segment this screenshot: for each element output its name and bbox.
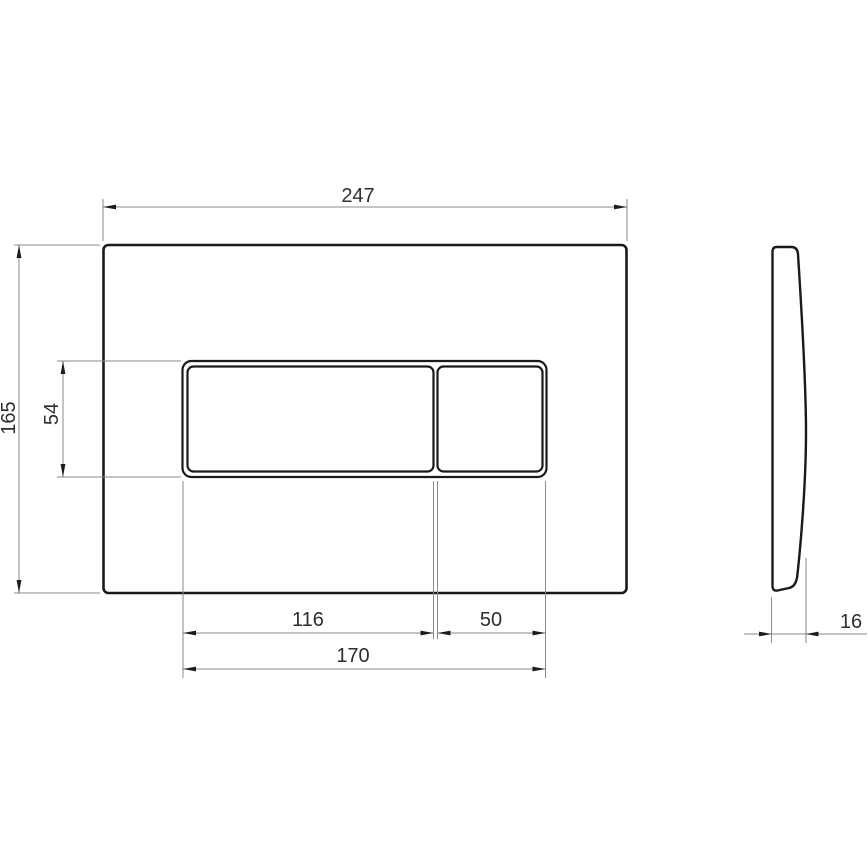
arrowhead-left [438,631,451,636]
large-flush-button [188,367,434,472]
arrowhead-right [533,667,546,672]
dim-plate-thickness: 16 [744,558,867,643]
dim-buttons-overall-width: 170 [183,645,546,671]
arrowhead-right-inward [806,632,819,637]
dim-label-plate-width: 247 [341,185,374,207]
button-recess-frame [183,361,547,477]
arrowhead-bottom [61,464,66,477]
side-view-profile [773,247,807,591]
arrowhead-bottom [17,580,22,593]
flush-plate-drawing: 247 165 54 116 50 [0,0,868,868]
dim-label-small-button-width: 50 [480,609,502,631]
technical-drawing-canvas: 247 165 54 116 50 [0,0,868,868]
arrowhead-right [421,631,434,636]
arrowhead-right [614,205,627,210]
dim-large-button-width: 116 [183,481,434,678]
small-flush-button [438,367,543,472]
side-view [773,247,807,591]
dim-small-button-width: 50 [438,481,546,678]
arrowhead-left-inward [759,632,772,637]
arrowhead-top [61,361,66,374]
dim-label-plate-thickness: 16 [840,611,862,633]
front-view [104,245,627,593]
dim-label-plate-height: 165 [0,401,20,434]
dim-plate-width: 247 [103,185,627,241]
dim-label-large-button-width: 116 [292,609,324,631]
arrowhead-left [183,667,196,672]
arrowhead-left [103,205,116,210]
dim-label-buttons-overall-width: 170 [336,645,369,667]
dim-label-buttons-height: 54 [41,403,63,425]
arrowhead-left [183,631,196,636]
arrowhead-right [533,631,546,636]
arrowhead-top [17,245,22,258]
dim-buttons-height: 54 [41,361,181,477]
